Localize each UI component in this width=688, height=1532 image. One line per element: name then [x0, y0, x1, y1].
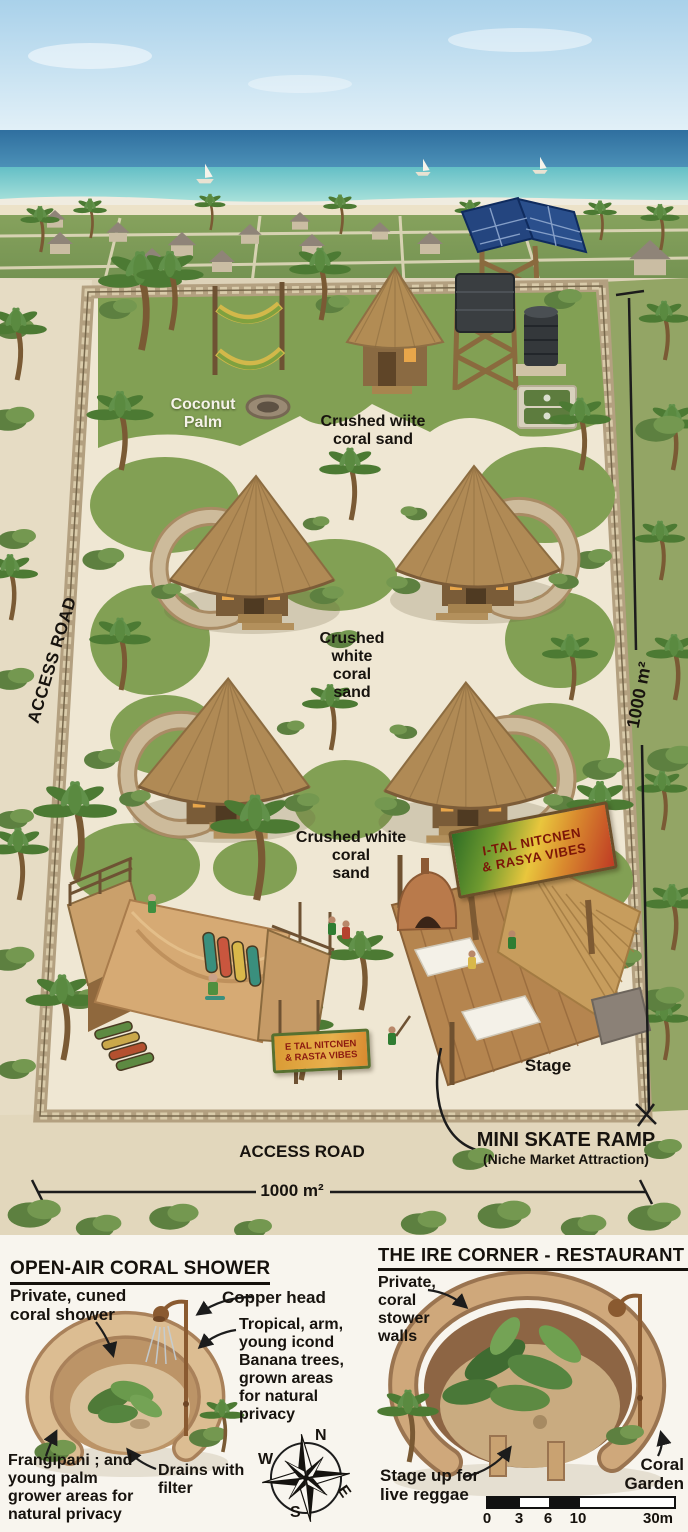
scale-tick-0: 0: [483, 1510, 491, 1527]
entrance-sign: E TAL NITCNEN & RASTA VIBES: [271, 1028, 371, 1073]
shower-panel-title: OPEN-AIR CORAL SHOWER: [10, 1258, 270, 1285]
label-dim-bottom: 1000 m²: [260, 1181, 323, 1200]
label-drains-filter: Drains with filter: [158, 1462, 244, 1498]
site-plan-illustration: Coconut Palm Crushed wiite coral sand Cr…: [0, 0, 688, 1532]
label-coconut-palm: Coconut Palm: [171, 396, 236, 432]
label-stage-up: Stage up for live reggae: [380, 1466, 479, 1504]
label-private-curved-shower: Private, cuned coral shower: [10, 1286, 126, 1324]
label-sand-lower: Crushed white coral sand: [296, 829, 406, 883]
scale-tick-3: 3: [515, 1510, 523, 1527]
scale-tick-10: 10: [570, 1510, 587, 1527]
label-sand-mid: Crushed white coral sand: [320, 630, 385, 702]
scale-tick-6: 6: [544, 1510, 552, 1527]
label-skate-title: MINI SKATE RAMP: [477, 1129, 656, 1151]
label-stage: Stage: [525, 1056, 571, 1075]
label-skate-sub: (Niche Market Attraction): [483, 1152, 649, 1168]
label-frangipani: Frangipani ; and young palm grower areas…: [8, 1452, 133, 1524]
compass-w: W: [258, 1451, 273, 1469]
scale-tick-30m: 30m: [643, 1510, 673, 1527]
skater: [148, 894, 156, 913]
scale-bar: [486, 1496, 676, 1509]
label-access-road-bottom: ACCESS ROAD: [239, 1142, 365, 1161]
ocean-scene: [0, 0, 688, 219]
label-tropical-banana: Tropical, arm, young icond Banana trees,…: [239, 1316, 344, 1423]
compass-s: S: [290, 1504, 301, 1522]
compass-n: N: [315, 1427, 327, 1445]
label-copper-head: Copper head: [222, 1288, 326, 1307]
fire-pit: [247, 396, 289, 418]
bar-panel-title: THE IRE CORNER - RESTAURANT & BAR: [378, 1244, 688, 1271]
label-coral-garden: Coral Garden: [624, 1455, 684, 1493]
label-coral-walls: Private, coral stower walls: [378, 1274, 436, 1346]
label-sand-top: Crushed wiite coral sand: [321, 413, 426, 449]
